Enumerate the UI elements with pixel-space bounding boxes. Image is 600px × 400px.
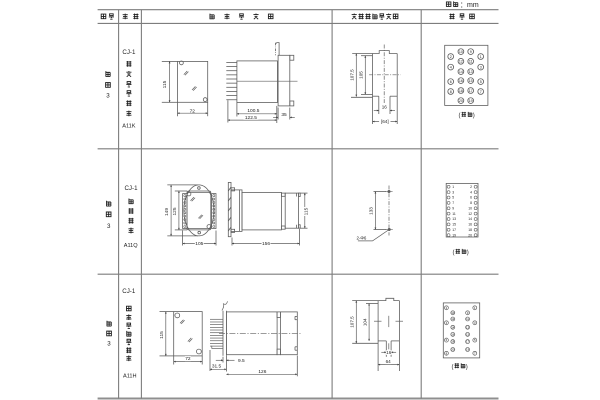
svg-text:10: 10	[451, 311, 455, 315]
svg-text:(: (	[452, 364, 454, 370]
svg-text:12: 12	[451, 317, 455, 321]
svg-text:100.5: 100.5	[247, 108, 259, 114]
svg-text:2: 2	[450, 55, 452, 59]
svg-text:(: (	[453, 250, 455, 256]
svg-text:14: 14	[459, 70, 463, 74]
svg-text:1: 1	[452, 185, 454, 189]
svg-text:14: 14	[468, 217, 472, 221]
svg-text:156: 156	[262, 241, 270, 247]
svg-text:CJ-1: CJ-1	[122, 49, 136, 56]
svg-text:12: 12	[468, 212, 472, 216]
svg-text:72: 72	[185, 356, 191, 362]
svg-text:19: 19	[452, 233, 456, 237]
svg-text:8: 8	[450, 90, 452, 94]
svg-text:19: 19	[466, 348, 470, 352]
svg-text:5: 5	[452, 196, 454, 200]
svg-text:13: 13	[452, 217, 456, 221]
svg-text:11: 11	[452, 212, 456, 216]
svg-text:3: 3	[452, 190, 454, 194]
svg-text:10: 10	[468, 206, 472, 210]
svg-text:133: 133	[369, 207, 374, 215]
svg-text:107.5: 107.5	[350, 316, 355, 328]
svg-text:CJ-1: CJ-1	[124, 185, 138, 192]
svg-text:CJ-1: CJ-1	[122, 288, 136, 295]
svg-text:(: (	[459, 113, 461, 119]
svg-text:115: 115	[304, 207, 310, 215]
svg-text:13: 13	[466, 325, 470, 329]
svg-text:7: 7	[480, 90, 482, 94]
svg-text:15: 15	[469, 79, 473, 83]
svg-text:A11H: A11H	[123, 373, 137, 379]
svg-text:115: 115	[159, 331, 165, 339]
svg-text:13: 13	[469, 70, 473, 74]
svg-text:125: 125	[172, 207, 178, 215]
svg-text:): )	[467, 250, 469, 256]
svg-text:31.5: 31.5	[212, 364, 222, 370]
svg-text:104: 104	[362, 318, 367, 326]
svg-text:122.5: 122.5	[245, 115, 257, 121]
svg-text:3: 3	[106, 93, 110, 100]
svg-text:105: 105	[359, 71, 364, 79]
svg-text:64: 64	[386, 359, 392, 364]
svg-text:72: 72	[190, 108, 196, 114]
svg-text:9: 9	[452, 206, 454, 210]
svg-text:1: 1	[480, 55, 482, 59]
svg-text:8: 8	[470, 201, 472, 205]
svg-text:107.5: 107.5	[350, 69, 355, 81]
svg-text:2-Φ6: 2-Φ6	[357, 236, 367, 241]
svg-text:16: 16	[451, 333, 455, 337]
svg-text:2: 2	[470, 185, 472, 189]
svg-text:9.5: 9.5	[238, 358, 245, 364]
svg-text:16: 16	[382, 105, 388, 110]
svg-text:20: 20	[468, 233, 472, 237]
svg-text:105: 105	[195, 241, 203, 247]
svg-text:20: 20	[459, 99, 463, 103]
svg-text:17: 17	[452, 228, 456, 232]
svg-text:9: 9	[470, 50, 472, 54]
svg-text:18: 18	[451, 340, 455, 344]
svg-text:3: 3	[107, 223, 111, 230]
svg-text:12: 12	[459, 60, 463, 64]
svg-text:19: 19	[469, 99, 473, 103]
svg-text:3: 3	[107, 340, 111, 347]
svg-text:16: 16	[386, 350, 391, 355]
svg-text:6: 6	[450, 80, 452, 84]
svg-text:10: 10	[459, 50, 463, 54]
svg-text:5: 5	[480, 80, 482, 84]
svg-text:20: 20	[451, 348, 455, 352]
svg-text:A11Q: A11Q	[124, 243, 139, 249]
svg-text:): )	[473, 113, 475, 119]
svg-text:11: 11	[469, 60, 473, 64]
svg-text:[64]: [64]	[381, 119, 389, 124]
svg-text:14: 14	[451, 325, 455, 329]
svg-text:35: 35	[281, 112, 287, 118]
svg-text:16: 16	[459, 79, 463, 83]
svg-text:15: 15	[452, 223, 456, 227]
svg-text:4: 4	[450, 65, 452, 69]
svg-text:6: 6	[470, 196, 472, 200]
svg-text:17: 17	[466, 340, 470, 344]
svg-text:126: 126	[258, 369, 266, 375]
svg-text:4: 4	[470, 190, 472, 194]
svg-text:3: 3	[480, 65, 482, 69]
svg-text:149: 149	[164, 208, 170, 216]
svg-text:A11K: A11K	[122, 123, 136, 129]
svg-text:18: 18	[459, 89, 463, 93]
svg-text:17: 17	[469, 89, 473, 93]
svg-text:115: 115	[162, 80, 168, 88]
svg-text:18: 18	[468, 228, 472, 232]
svg-text:7: 7	[452, 201, 454, 205]
svg-text:11: 11	[466, 317, 469, 321]
svg-text:16: 16	[468, 223, 472, 227]
svg-text:：mm: ：mm	[460, 2, 479, 9]
svg-text:15: 15	[466, 333, 470, 337]
svg-text:): )	[466, 364, 468, 370]
